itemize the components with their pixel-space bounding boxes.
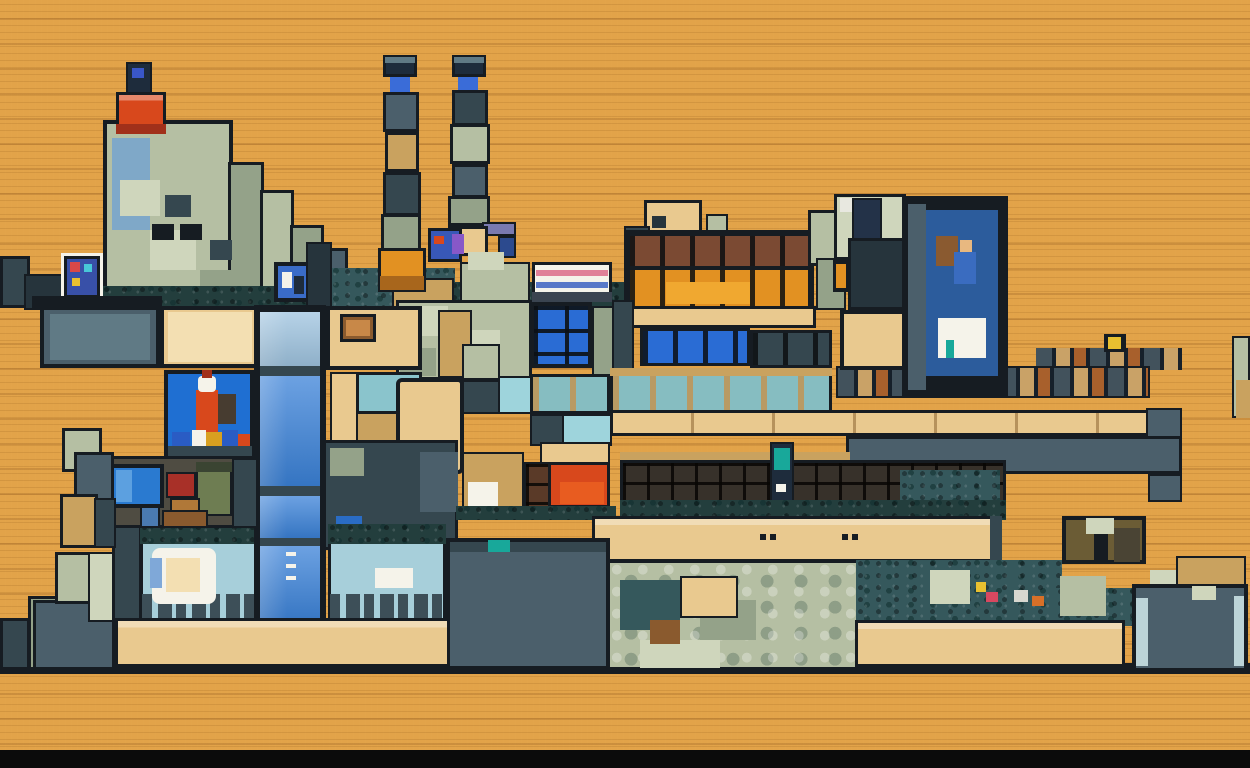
tan-over-slate-right xyxy=(1176,556,1246,586)
midwall-column xyxy=(420,452,458,512)
chimney-b-seg-3 xyxy=(452,164,488,198)
slate-right-notch xyxy=(1192,584,1216,600)
aquarium-1-creature-box xyxy=(166,558,200,592)
monitor-bottle xyxy=(946,340,954,358)
elevator-tick-3 xyxy=(286,576,296,580)
bush-fleck-orange xyxy=(1032,596,1044,606)
aqua-window-1 xyxy=(498,376,532,414)
room-slate-left-inner xyxy=(50,314,150,360)
bush-fleck-pink xyxy=(986,592,998,602)
floor-bar-left xyxy=(115,618,450,667)
aquarium-1-creature-fin xyxy=(150,558,162,588)
terrain-brown-bit xyxy=(650,620,680,644)
chimney-b-seg-1 xyxy=(452,90,488,126)
hill-fleck-2 xyxy=(210,240,232,260)
rocket-base-box-5 xyxy=(238,434,250,446)
rocket-top xyxy=(198,376,216,392)
floor-bar-right xyxy=(855,620,1125,667)
orange-window-glow xyxy=(836,264,846,288)
game-viewport xyxy=(0,0,1250,768)
slate-right-light-right xyxy=(1234,596,1244,666)
tan-bar-long xyxy=(610,410,1150,436)
slate-bar-step-up xyxy=(1146,408,1182,438)
chimney-b-glow xyxy=(458,77,478,91)
sage-small-block xyxy=(462,344,500,380)
press-side xyxy=(1114,528,1140,562)
deck-machine-stripe-blue xyxy=(536,282,608,288)
elevator-tick-2 xyxy=(286,564,296,568)
big-slate-sign xyxy=(488,540,510,552)
chimney-a-seg-3 xyxy=(383,172,421,216)
vending-pixel-2 xyxy=(84,264,92,272)
greenhouse-sill xyxy=(626,306,816,328)
white-window xyxy=(468,482,498,506)
workshop-barrel xyxy=(140,506,160,528)
kiosk-label xyxy=(776,484,786,492)
deck-machine-base xyxy=(532,292,612,302)
dot-bar xyxy=(592,516,1002,562)
right-edge-sliver-tan xyxy=(1236,380,1250,418)
workshop-green-machine-top xyxy=(196,462,232,472)
elevator-panel-2[interactable] xyxy=(260,376,320,486)
dot-4 xyxy=(852,534,858,540)
amber-basket-shade xyxy=(380,276,424,290)
workshop-cabinet xyxy=(232,458,258,528)
hill-window-1 xyxy=(152,224,174,240)
slate-right-light-left xyxy=(1136,598,1148,666)
monitor-figure-head xyxy=(960,240,972,252)
bush-fleck-yellow xyxy=(976,582,986,592)
antenna-light xyxy=(132,68,144,78)
chimney-a-glow xyxy=(390,77,410,93)
slate-bar-step-down xyxy=(1148,474,1182,502)
bush-sage-2 xyxy=(1060,576,1106,616)
greenhouse-parapet-window xyxy=(652,216,666,228)
tan-pillar-mid xyxy=(330,372,358,442)
monitor-room-slate-col xyxy=(908,204,926,390)
annex-dark xyxy=(94,498,116,548)
letterbox-bottom xyxy=(0,750,1250,768)
rocket-base-box-3 xyxy=(206,432,222,446)
dot-2 xyxy=(770,534,776,540)
rocket-base-box-4 xyxy=(222,430,238,446)
elevator-sep-1 xyxy=(260,366,320,376)
deck-sage-top xyxy=(468,252,504,270)
rocket-base-box-2 xyxy=(192,430,206,446)
workshop-crate-2 xyxy=(170,498,200,512)
bush-sage-1 xyxy=(930,570,970,604)
rocket-base-box-1 xyxy=(172,432,190,446)
slate-small-block xyxy=(462,380,500,414)
chimney-a-seg-2 xyxy=(385,132,419,172)
vending-pixel-3 xyxy=(72,278,80,286)
teal-glass-row-cap xyxy=(610,368,832,376)
elevator-panel-3[interactable] xyxy=(260,496,320,538)
elevator-panel-1[interactable] xyxy=(260,312,320,366)
window-band-blue xyxy=(640,328,750,366)
hill-window-2 xyxy=(180,224,202,240)
smokestack-cap-band xyxy=(116,124,166,134)
deck-screen-shadow xyxy=(294,276,304,294)
annex-tan xyxy=(60,494,98,548)
press-head xyxy=(1086,518,1114,534)
robot-side xyxy=(452,234,464,254)
red-block-highlight xyxy=(560,482,604,504)
terrain-light-blob xyxy=(640,640,720,668)
elevator-sep-2 xyxy=(260,486,320,496)
hill-blob-1 xyxy=(120,180,160,216)
tv-screen-glare xyxy=(116,470,132,502)
big-slate-top-strip xyxy=(450,542,606,552)
aquarium-2-sign xyxy=(375,568,413,588)
vending-pixel-1 xyxy=(70,262,80,272)
wall-shelf-inner xyxy=(346,320,370,336)
elevator-panel-4[interactable] xyxy=(260,546,320,624)
window-blue-grid xyxy=(530,302,592,368)
chimney-b-seg-2 xyxy=(450,124,490,164)
deck-screen-figure xyxy=(282,272,292,288)
room-tan-1-inner xyxy=(168,312,252,362)
rock-left-a xyxy=(0,618,30,670)
kiosk-screen xyxy=(774,448,790,470)
hill-fleck-1 xyxy=(165,195,191,217)
wall-lamp-glow xyxy=(1108,337,1121,349)
monitor-figure-body xyxy=(954,252,976,284)
elevator-tick-1 xyxy=(286,552,296,556)
antenna-box xyxy=(126,62,152,94)
chimney-a-seg-1 xyxy=(383,92,419,132)
aquarium-2-skyline xyxy=(330,594,444,620)
slate-block-right xyxy=(1132,584,1248,672)
chimney-a-cap-line xyxy=(385,57,415,63)
dot-1 xyxy=(760,534,766,540)
deck-dark-block xyxy=(306,242,332,308)
chimney-b-cap-line xyxy=(454,57,484,63)
greenhouse-glow-core xyxy=(666,282,750,304)
robot-eye xyxy=(434,236,444,244)
red-grid-panel xyxy=(524,462,550,508)
dot-bar-cap xyxy=(990,516,1002,562)
bush-fleck-white xyxy=(1014,590,1028,602)
terrain-tan-patch xyxy=(680,576,738,618)
press-arm xyxy=(1094,534,1108,564)
window-band-slate xyxy=(750,330,832,368)
workshop-red-machine[interactable] xyxy=(166,472,196,498)
hedge-aquarium-2 xyxy=(328,524,446,544)
midwall-sage xyxy=(330,448,364,476)
greenhouse-glass-top xyxy=(630,236,808,266)
big-slate-block xyxy=(446,538,610,670)
rocket-tip xyxy=(202,370,212,378)
workshop-crate-1 xyxy=(162,510,208,528)
teal-glass-left xyxy=(530,374,610,414)
elevator-sep-3 xyxy=(260,538,320,546)
deck-machine-stripe-pink xyxy=(536,270,608,276)
rocket-side-crate xyxy=(218,394,236,424)
column-slate xyxy=(612,300,634,378)
dot-3 xyxy=(842,534,848,540)
